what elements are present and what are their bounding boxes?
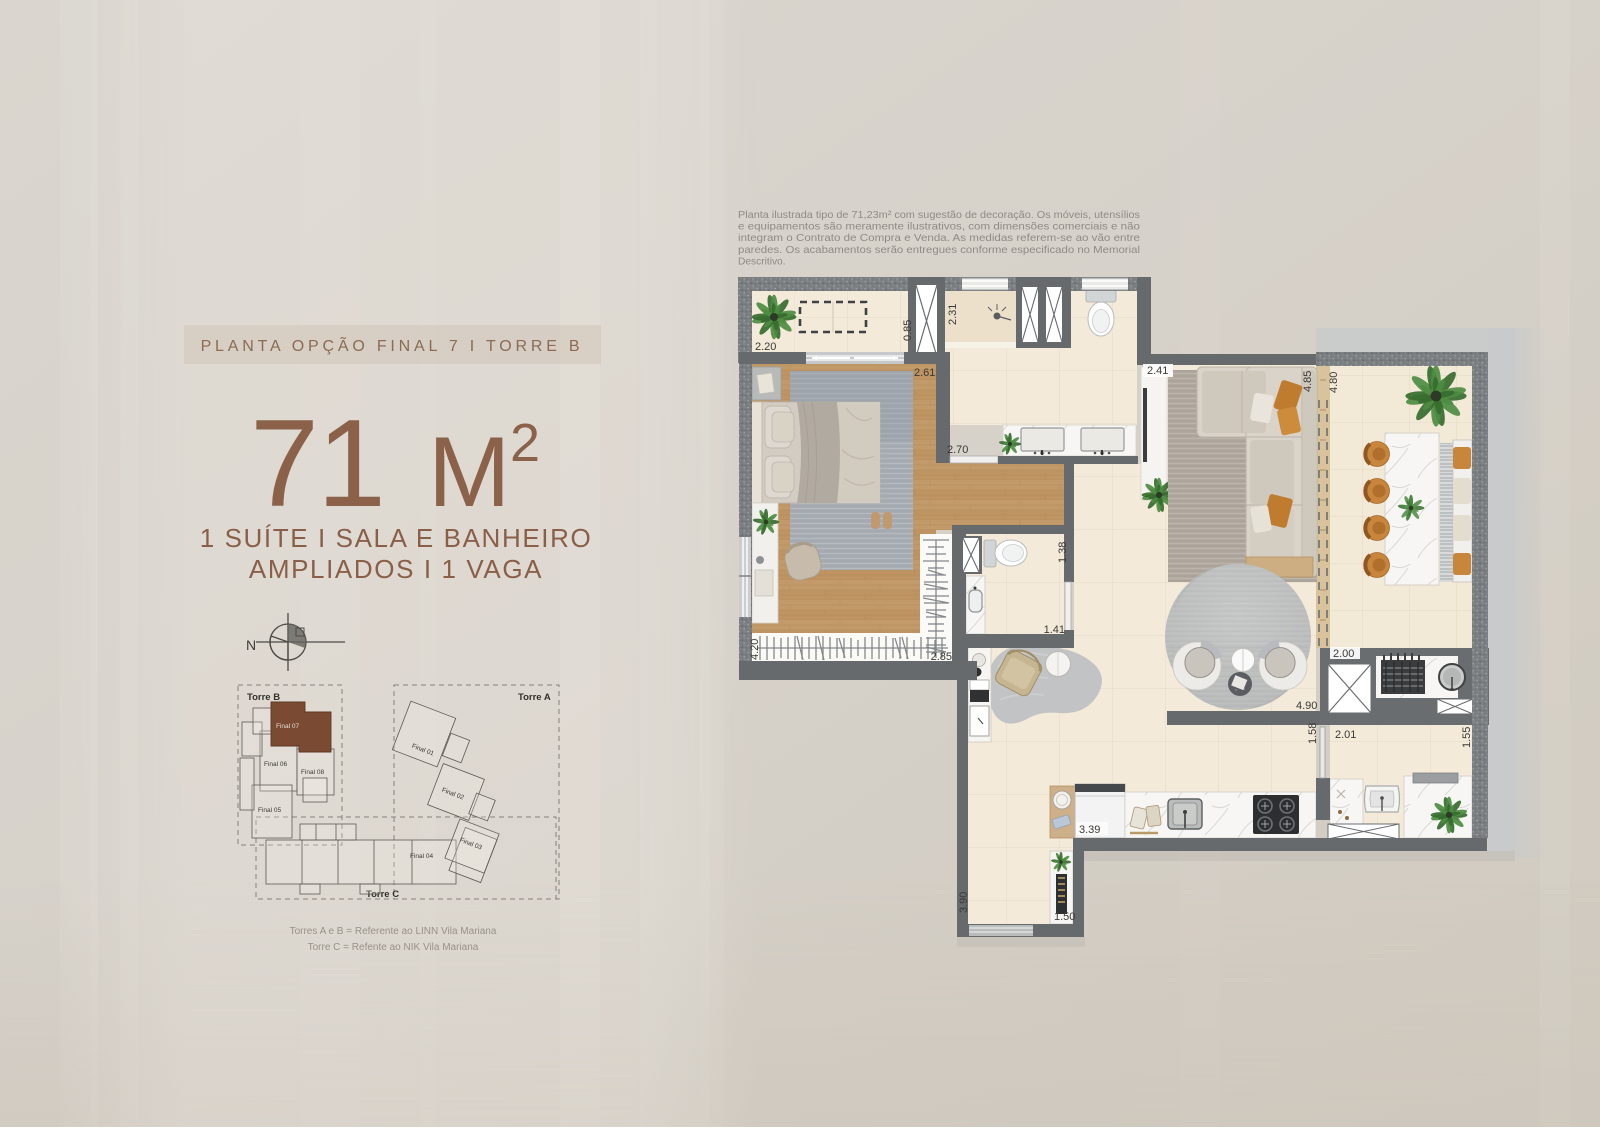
svg-text:AMPLIADOS I 1 VAGA: AMPLIADOS I 1 VAGA — [249, 554, 543, 584]
svg-text:3.39: 3.39 — [1079, 824, 1100, 836]
svg-text:1.55: 1.55 — [1461, 727, 1473, 748]
svg-text:1: 1 — [317, 395, 386, 533]
svg-text:1.50: 1.50 — [1054, 911, 1075, 923]
svg-text:Torre C = Refente ao NIK Vila: Torre C = Refente ao NIK Vila Mariana — [308, 942, 479, 953]
svg-text:1.41: 1.41 — [1044, 624, 1065, 636]
svg-text:2.20: 2.20 — [755, 341, 776, 353]
svg-text:Final 07: Final 07 — [276, 723, 300, 730]
svg-text:2.41: 2.41 — [1147, 365, 1168, 377]
svg-text:2.70: 2.70 — [947, 444, 968, 456]
svg-text:2: 2 — [510, 413, 540, 473]
svg-text:Final 08: Final 08 — [301, 769, 325, 776]
svg-text:PLANTA OPÇÃO FINAL 7 I TORRE B: PLANTA OPÇÃO FINAL 7 I TORRE B — [201, 335, 584, 355]
svg-text:2.01: 2.01 — [1335, 729, 1356, 741]
svg-text:7: 7 — [250, 395, 319, 533]
svg-text:2.61: 2.61 — [914, 367, 935, 379]
svg-text:4.20: 4.20 — [749, 639, 761, 660]
svg-text:1 SUÍTE I SALA E BANHEIRO: 1 SUÍTE I SALA E BANHEIRO — [200, 523, 593, 553]
svg-text:2.00: 2.00 — [1333, 648, 1354, 660]
svg-text:Descritivo.: Descritivo. — [738, 256, 786, 267]
svg-text:Torre A: Torre A — [518, 692, 551, 703]
svg-text:1.58: 1.58 — [1307, 723, 1319, 744]
svg-text:0.85: 0.85 — [902, 320, 914, 341]
svg-text:1.38: 1.38 — [1057, 542, 1069, 563]
svg-text:paredes. Os acabamentos serão: paredes. Os acabamentos serão entregues … — [738, 245, 1140, 256]
svg-text:Torre B: Torre B — [247, 692, 280, 703]
svg-text:Planta ilustrada tipo de 71,23: Planta ilustrada tipo de 71,23m² com sug… — [738, 210, 1140, 221]
svg-text:2.31: 2.31 — [947, 304, 959, 325]
svg-text:integram o Contrato de Compra: integram o Contrato de Compra e Venda. A… — [738, 233, 1140, 244]
svg-text:4.90: 4.90 — [1296, 700, 1317, 712]
svg-text:M: M — [428, 416, 510, 527]
svg-text:Torres A e B = Referente ao LI: Torres A e B = Referente ao LINN Vila Ma… — [290, 926, 497, 937]
svg-text:4.85: 4.85 — [1302, 371, 1314, 392]
svg-text:N: N — [246, 637, 256, 653]
svg-text:Final 06: Final 06 — [264, 761, 288, 768]
svg-text:Final 04: Final 04 — [410, 853, 434, 860]
svg-text:2.85: 2.85 — [931, 651, 952, 663]
svg-text:4.80: 4.80 — [1328, 372, 1340, 393]
svg-text:3.90: 3.90 — [958, 892, 970, 913]
svg-text:e equipamentos são meramente i: e equipamentos são meramente ilustrativo… — [738, 222, 1140, 233]
svg-text:Final 05: Final 05 — [258, 807, 282, 814]
